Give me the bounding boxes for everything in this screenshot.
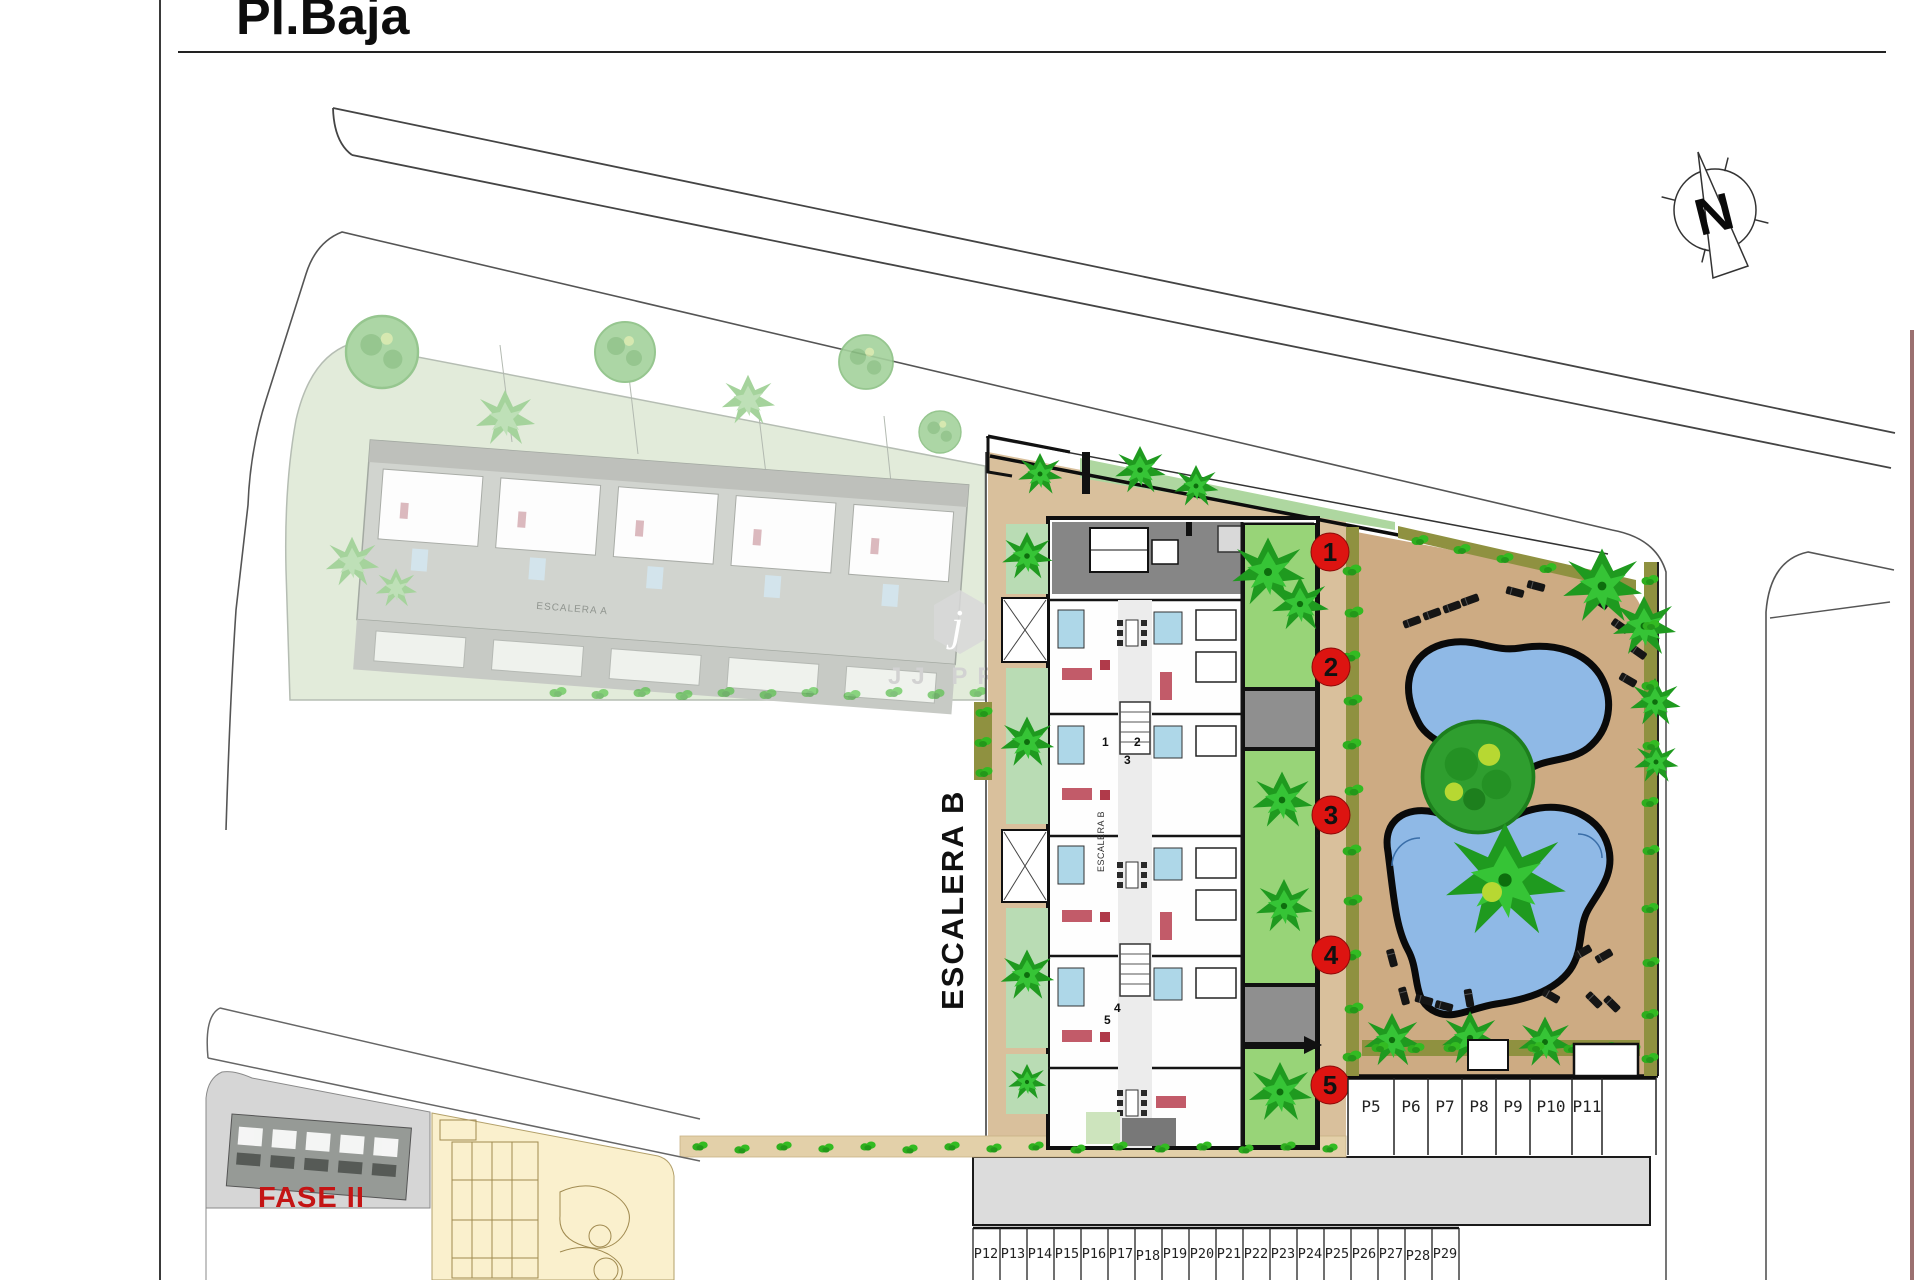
parking-stall: P6 xyxy=(1401,1097,1420,1116)
entrance-marker-1: 1 xyxy=(1311,533,1349,571)
parking-stall: P20 xyxy=(1190,1246,1214,1262)
svg-text:4: 4 xyxy=(1324,940,1339,970)
parking-stall: P27 xyxy=(1379,1246,1403,1262)
parking-stall: P5 xyxy=(1361,1097,1380,1116)
parking-stall: P10 xyxy=(1537,1097,1566,1116)
parking-stall: P13 xyxy=(1001,1246,1025,1262)
site-plan-sheet: Pl.Baja xyxy=(0,0,1920,1280)
phase1-plot: ESCALERA A xyxy=(286,316,1029,714)
parking-stall: P12 xyxy=(974,1246,998,1262)
entrance-marker-5: 5 xyxy=(1311,1066,1349,1104)
mini-map-current-phase-plot xyxy=(432,1113,674,1280)
parking-stall: P9 xyxy=(1503,1097,1522,1116)
parking-stall: P7 xyxy=(1435,1097,1454,1116)
parking-stall: P11 xyxy=(1573,1097,1602,1116)
access-road xyxy=(973,1157,1650,1225)
parking-stall: P28 xyxy=(1406,1248,1430,1264)
parking-stall: P15 xyxy=(1055,1246,1079,1262)
escalera-b-small-label: ESCALERA B xyxy=(1096,811,1106,872)
entrance-marker-4: 4 xyxy=(1312,936,1350,974)
entrance-marker-2: 2 xyxy=(1312,648,1350,686)
fase-ii-label: FASE II xyxy=(258,1182,365,1214)
svg-text:2: 2 xyxy=(1324,652,1338,682)
parking-stall: P16 xyxy=(1082,1246,1106,1262)
parking-stall: P22 xyxy=(1244,1246,1268,1262)
svg-text:3: 3 xyxy=(1124,753,1131,767)
parking-stall: P25 xyxy=(1325,1246,1349,1262)
svg-text:1: 1 xyxy=(1323,537,1337,567)
west-lawn xyxy=(1001,524,1055,1114)
main-building: ESCALERA B 1 2 3 4 5 xyxy=(1048,518,1329,1148)
parking-stall: P18 xyxy=(1136,1248,1160,1264)
phase1-building: ESCALERA A xyxy=(353,440,969,714)
parking-stall: P23 xyxy=(1271,1246,1295,1262)
parking-stall: P14 xyxy=(1028,1246,1052,1262)
page-title: Pl.Baja xyxy=(236,0,410,46)
pool-area xyxy=(1387,642,1610,1015)
escalera-b-label: ESCALERA B xyxy=(935,790,970,1010)
parking-stall: P17 xyxy=(1109,1246,1133,1262)
svg-text:4: 4 xyxy=(1114,1001,1121,1015)
parking-stall: P29 xyxy=(1433,1246,1457,1262)
entrance-marker-3: 3 xyxy=(1312,796,1350,834)
compass-north-letter: N xyxy=(1689,182,1739,247)
svg-text:1: 1 xyxy=(1102,735,1109,749)
parking-stall: P24 xyxy=(1298,1246,1322,1262)
svg-text:2: 2 xyxy=(1134,735,1141,749)
svg-text:3: 3 xyxy=(1324,800,1338,830)
compass: N xyxy=(1662,152,1769,278)
parking-stall: P8 xyxy=(1469,1097,1488,1116)
parking-stall: P26 xyxy=(1352,1246,1376,1262)
svg-text:5: 5 xyxy=(1104,1013,1111,1027)
svg-text:5: 5 xyxy=(1323,1070,1337,1100)
parking-stall: P21 xyxy=(1217,1246,1241,1262)
phase-mini-map: FASE II xyxy=(206,1008,700,1280)
site-plan-drawing: Pl.Baja xyxy=(0,0,1920,1280)
parking-lower-row: P12 P13 P14 P15 P16 P17 P18 P19 P20 P21 … xyxy=(973,1228,1459,1280)
parking-stall: P19 xyxy=(1163,1246,1187,1262)
